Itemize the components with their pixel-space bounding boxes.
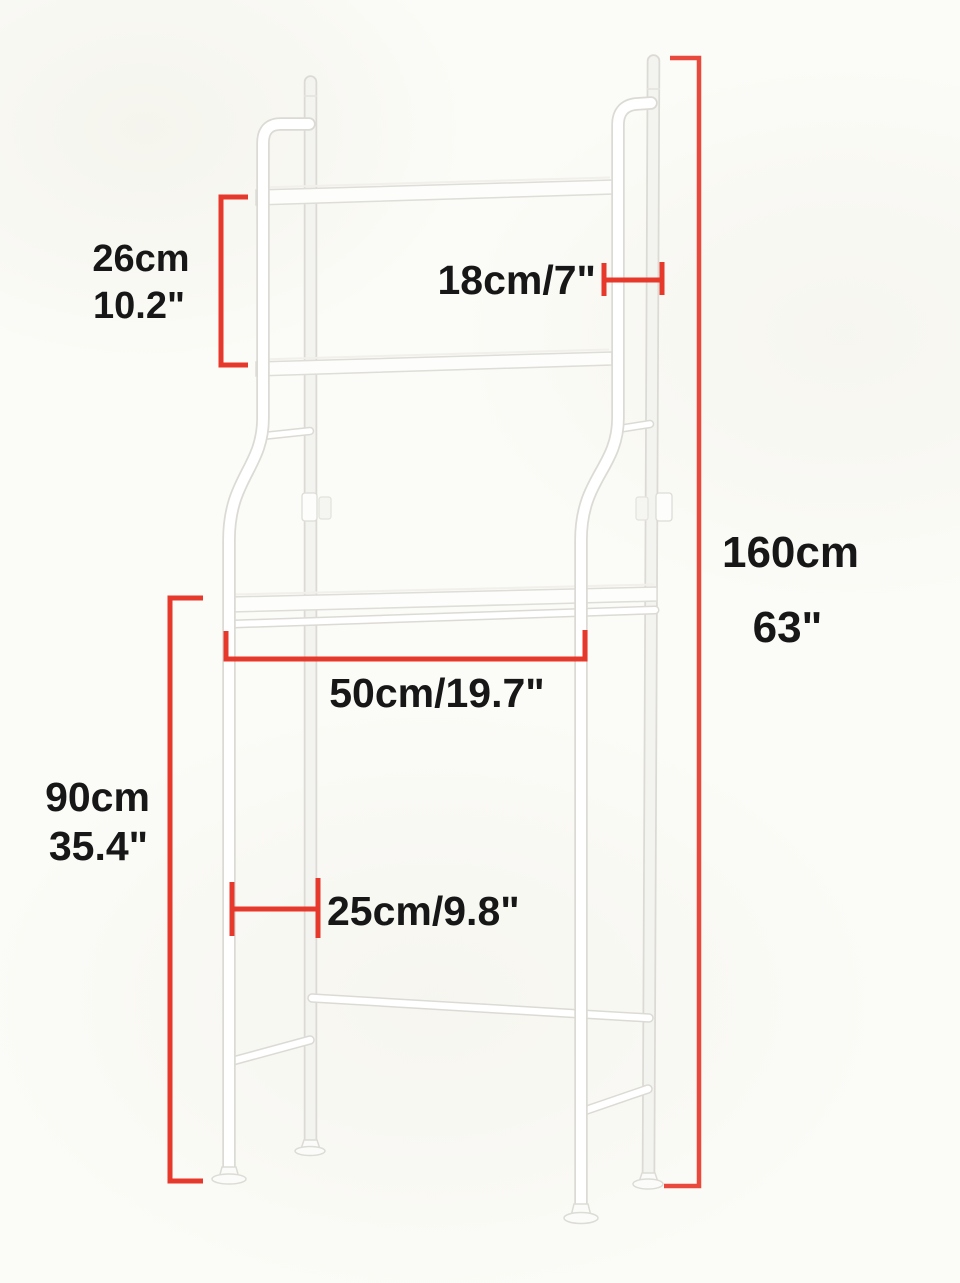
dim-label-clearance-height-cm: 90cm	[25, 775, 170, 819]
dim-label-clearance-height-inch: 35.4"	[20, 824, 177, 868]
bottom-crossbar	[312, 998, 649, 1018]
dim-line-clearance-height	[170, 598, 203, 1181]
dim-label-overall-height-inch: 63"	[705, 606, 870, 650]
dim-label-overall-height-cm: 160cm	[708, 531, 873, 575]
front-left-foot	[212, 1167, 246, 1184]
left-upper-rung	[263, 431, 310, 436]
dim-label-shelf-spacing-cm: 26cm	[78, 237, 204, 281]
front-right-foot	[564, 1204, 598, 1224]
dim-label-side-depth: 25cm/9.8"	[327, 889, 557, 933]
back-left-leg	[304, 82, 317, 1141]
back-left-foot	[295, 1140, 325, 1156]
dim-line-shelf-spacing	[221, 197, 248, 365]
left-wall-clip	[302, 493, 331, 521]
product-dimension-image: 26cm 10.2" 18cm/7" 160cm 63" 50cm/19.7" …	[0, 0, 960, 1283]
middle-shelf-front-bar	[234, 610, 655, 624]
right-lower-side-rail	[581, 1089, 648, 1112]
left-lower-side-rail	[229, 1040, 310, 1062]
dim-label-inner-width: 50cm/19.7"	[327, 671, 547, 715]
dim-line-inner-width	[226, 630, 585, 659]
back-right-leg	[647, 61, 660, 1173]
dim-label-top-shelf-depth: 18cm/7"	[410, 258, 596, 302]
back-right-foot	[633, 1173, 663, 1189]
dim-line-overall-height	[664, 58, 699, 1186]
dim-label-shelf-spacing-inch: 10.2"	[76, 284, 202, 328]
front-left-leg	[229, 124, 309, 1167]
